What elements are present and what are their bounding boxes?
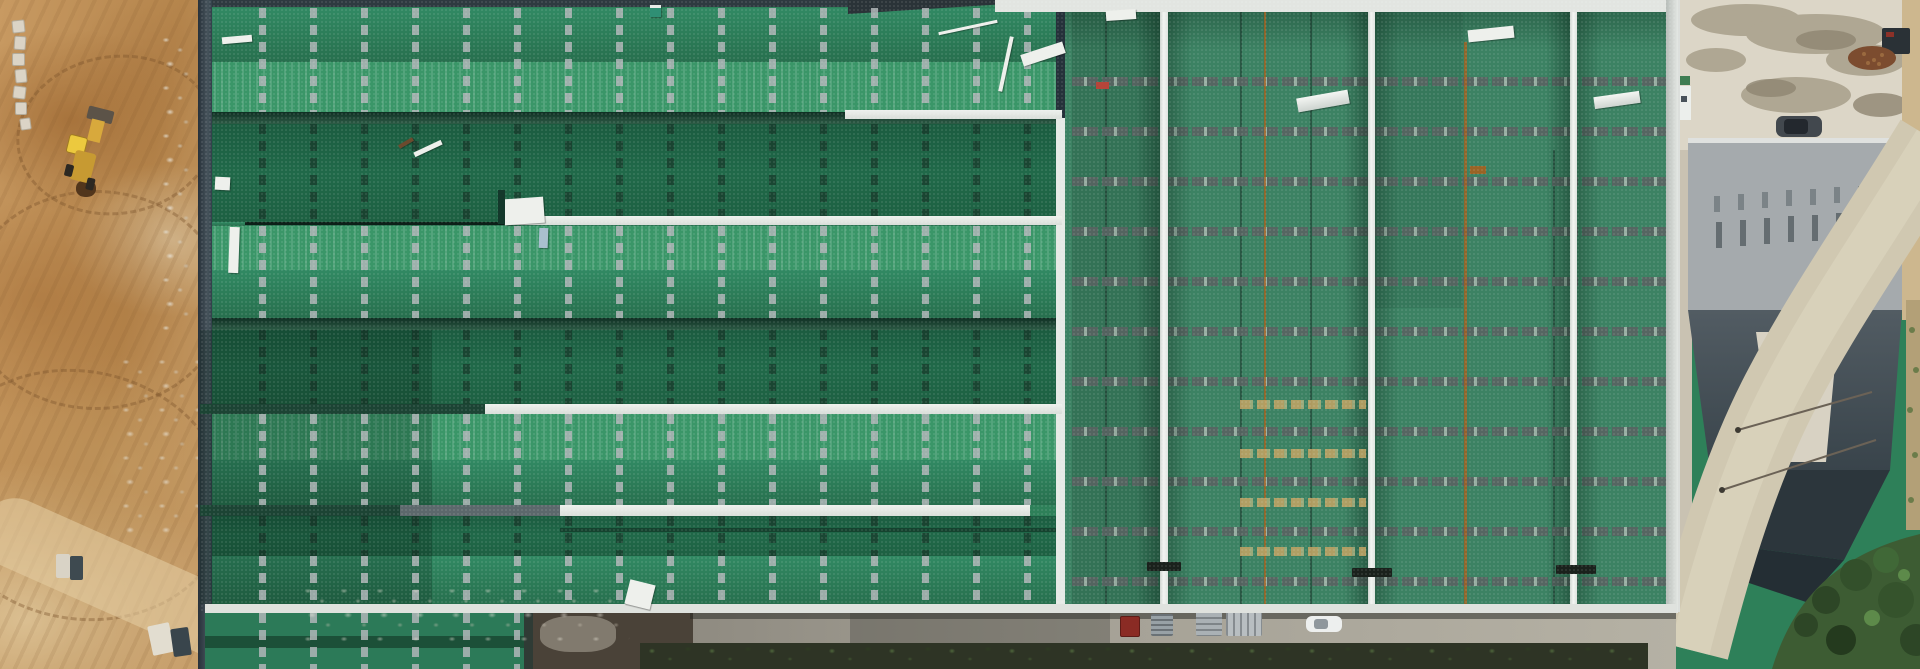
skylight-strips-tan (1240, 360, 1366, 560)
ridge-end-bar (1147, 562, 1181, 571)
eave-shadow-line (560, 528, 1062, 532)
debris-pile (1848, 46, 1896, 70)
section-boundary-dark (1056, 0, 1065, 118)
ridge-shadow (1375, 8, 1399, 604)
roadside-gravel (300, 585, 630, 645)
eave-top (200, 0, 852, 7)
stone-block (14, 36, 27, 51)
stone-block (19, 117, 32, 130)
ridge-cap (1160, 8, 1168, 604)
rust-seam (1464, 42, 1467, 604)
concrete-cube-shadow (70, 556, 83, 580)
vegetation-ditch (640, 643, 1648, 669)
walkway-strip (510, 216, 1062, 225)
ridge-shadow (1168, 8, 1192, 604)
roof-valley-dark (200, 505, 400, 516)
stone-block (11, 19, 25, 33)
right-zone-graphic (1676, 0, 1920, 669)
stone-block (14, 69, 27, 84)
white-car (1306, 616, 1342, 632)
skylight-strips-shaded (215, 330, 1060, 404)
car-windshield (1314, 619, 1328, 629)
ridge-shadow (1136, 8, 1160, 604)
ridge-cap (1368, 8, 1375, 604)
walkway-strip (845, 110, 1062, 119)
roof-valley-dark (200, 404, 485, 414)
debris-card (539, 228, 549, 248)
concrete-cube (56, 554, 70, 578)
roof-valley-slate (400, 505, 560, 516)
pallet-stack (1226, 611, 1262, 636)
stone-block (12, 85, 26, 99)
concrete-cube-shadow (170, 627, 192, 657)
ridge-shadow (1546, 8, 1570, 604)
ridge-end-bar (1556, 565, 1596, 574)
aerial-photo-construction-site (0, 0, 1920, 669)
roadside-grass-strip (1906, 300, 1920, 530)
loader-arm (87, 119, 105, 143)
annex-parapet (1688, 138, 1902, 143)
ridge-end-bar (1352, 568, 1392, 577)
skylight-strips (215, 8, 1060, 112)
roof-vent-box (650, 5, 661, 17)
utility-box-vent (1681, 96, 1687, 102)
debris-plank-vertical (228, 227, 240, 273)
pallet-stack (1151, 614, 1173, 636)
road-shadow-line (690, 612, 1676, 619)
ridge-cap (1570, 8, 1577, 604)
skylight-strips-shaded (215, 124, 1060, 222)
platform-pole (498, 190, 505, 224)
rubble-patch (118, 356, 210, 536)
loader-wheel (85, 177, 96, 191)
walkway-strip (560, 505, 1030, 516)
skylight-strips (215, 226, 1060, 318)
stone-block (15, 102, 27, 115)
red-label (1096, 82, 1109, 89)
debris-sheet (1106, 9, 1137, 21)
pallet-stack (1196, 611, 1222, 636)
skylight-strips (215, 414, 1060, 505)
debris-sheet (215, 177, 231, 191)
red-truck (1120, 616, 1140, 637)
skylight-strips-shaded (215, 516, 1060, 556)
roof-valley-line (245, 222, 510, 225)
road-dark-patch (850, 612, 1110, 646)
building-right-eave (1666, 0, 1678, 613)
eave-top-white (995, 0, 1676, 12)
rust-patch (1470, 166, 1486, 174)
stone-block (12, 53, 25, 66)
bin-red-mark (1886, 32, 1894, 37)
roof-platform (503, 197, 545, 226)
walkway-strip (485, 404, 1062, 414)
section-boundary-ridge (1056, 118, 1065, 608)
roof-ridge-band (200, 318, 1062, 330)
dark-car-roof (1784, 119, 1808, 134)
